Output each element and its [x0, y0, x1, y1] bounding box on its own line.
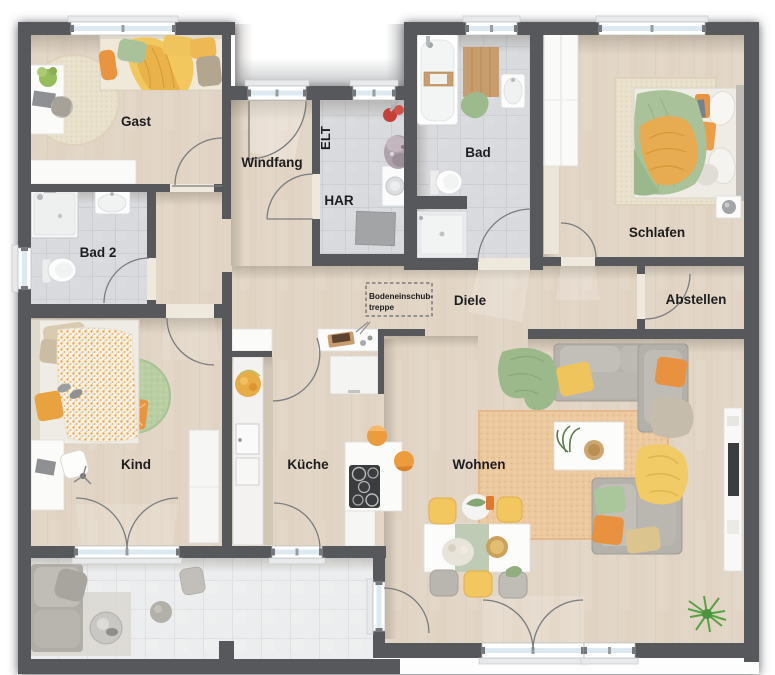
svg-text:Windfang: Windfang [241, 155, 302, 170]
svg-text:Wohnen: Wohnen [453, 457, 506, 472]
svg-text:Kind: Kind [121, 457, 151, 472]
svg-text:Bad: Bad [465, 145, 491, 160]
svg-text:treppe: treppe [369, 303, 394, 312]
svg-text:Schlafen: Schlafen [629, 225, 685, 240]
svg-text:Gast: Gast [121, 114, 152, 129]
svg-text:Küche: Küche [287, 457, 329, 472]
svg-text:ELT: ELT [318, 126, 333, 150]
svg-text:Diele: Diele [454, 293, 487, 308]
svg-text:Bodeneinschub-: Bodeneinschub- [369, 292, 433, 301]
svg-text:Bad 2: Bad 2 [80, 245, 117, 260]
svg-text:HAR: HAR [324, 193, 353, 208]
svg-text:Abstellen: Abstellen [666, 292, 727, 307]
